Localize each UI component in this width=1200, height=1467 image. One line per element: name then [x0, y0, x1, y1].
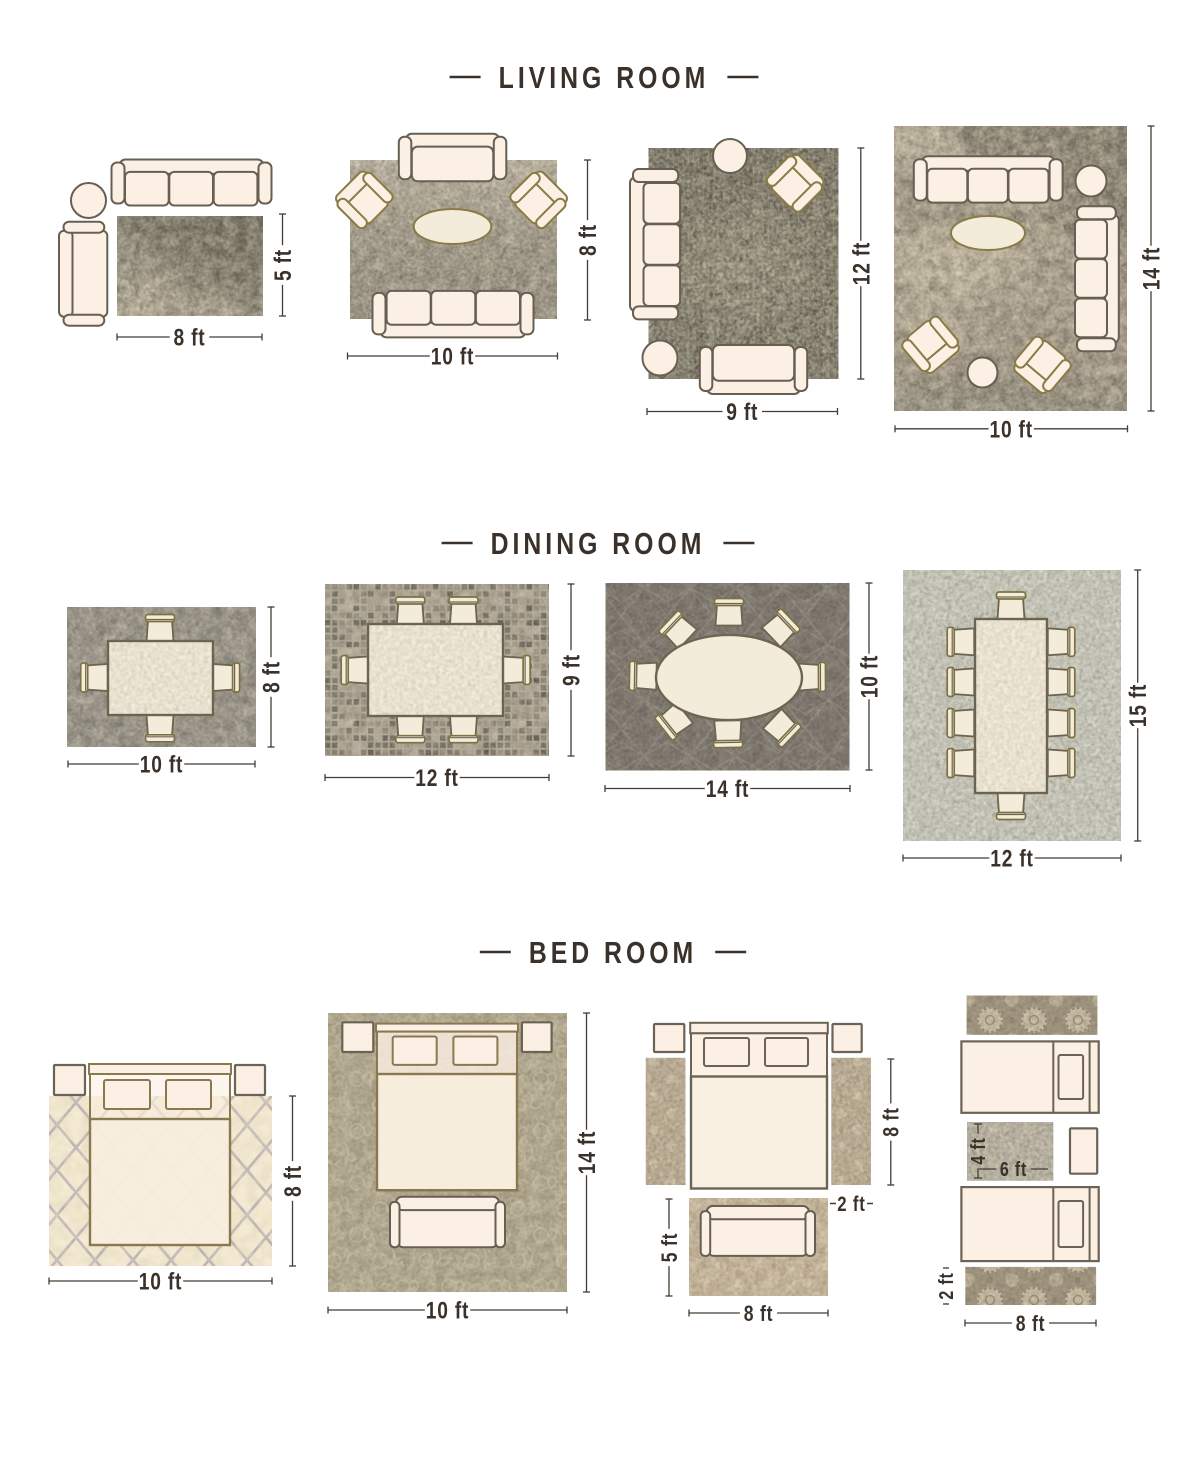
svg-text:8 ft: 8 ft — [880, 1107, 904, 1137]
svg-text:8 ft: 8 ft — [574, 224, 602, 256]
svg-text:8 ft: 8 ft — [279, 1165, 307, 1197]
svg-text:5 ft: 5 ft — [658, 1233, 682, 1263]
svg-text:BED ROOM: BED ROOM — [529, 935, 697, 969]
svg-text:14 ft: 14 ft — [573, 1131, 601, 1174]
svg-text:10 ft: 10 ft — [989, 415, 1032, 443]
svg-text:5 ft: 5 ft — [269, 249, 297, 281]
svg-text:8 ft: 8 ft — [257, 661, 285, 693]
svg-text:10 ft: 10 ft — [139, 1267, 182, 1295]
svg-text:12 ft: 12 ft — [415, 764, 458, 792]
svg-text:10 ft: 10 ft — [426, 1296, 469, 1324]
svg-text:10 ft: 10 ft — [855, 655, 883, 698]
svg-text:9 ft: 9 ft — [557, 654, 585, 686]
svg-text:15 ft: 15 ft — [1124, 684, 1152, 727]
svg-text:10 ft: 10 ft — [431, 342, 474, 370]
svg-text:LIVING ROOM: LIVING ROOM — [499, 60, 710, 94]
svg-text:12 ft: 12 ft — [847, 242, 875, 285]
svg-text:9 ft: 9 ft — [726, 398, 758, 426]
svg-text:14 ft: 14 ft — [1137, 247, 1165, 290]
svg-text:10 ft: 10 ft — [140, 750, 183, 778]
svg-text:2 ft: 2 ft — [935, 1272, 957, 1299]
svg-text:12 ft: 12 ft — [990, 844, 1033, 872]
svg-text:4 ft: 4 ft — [967, 1137, 989, 1164]
svg-text:6 ft: 6 ft — [1000, 1158, 1027, 1180]
svg-text:8 ft: 8 ft — [174, 323, 206, 351]
svg-text:14 ft: 14 ft — [706, 775, 749, 803]
svg-text:2 ft: 2 ft — [837, 1193, 865, 1216]
svg-text:DINING ROOM: DINING ROOM — [491, 526, 706, 560]
svg-text:8 ft: 8 ft — [1016, 1312, 1046, 1336]
svg-text:8 ft: 8 ft — [744, 1302, 774, 1326]
